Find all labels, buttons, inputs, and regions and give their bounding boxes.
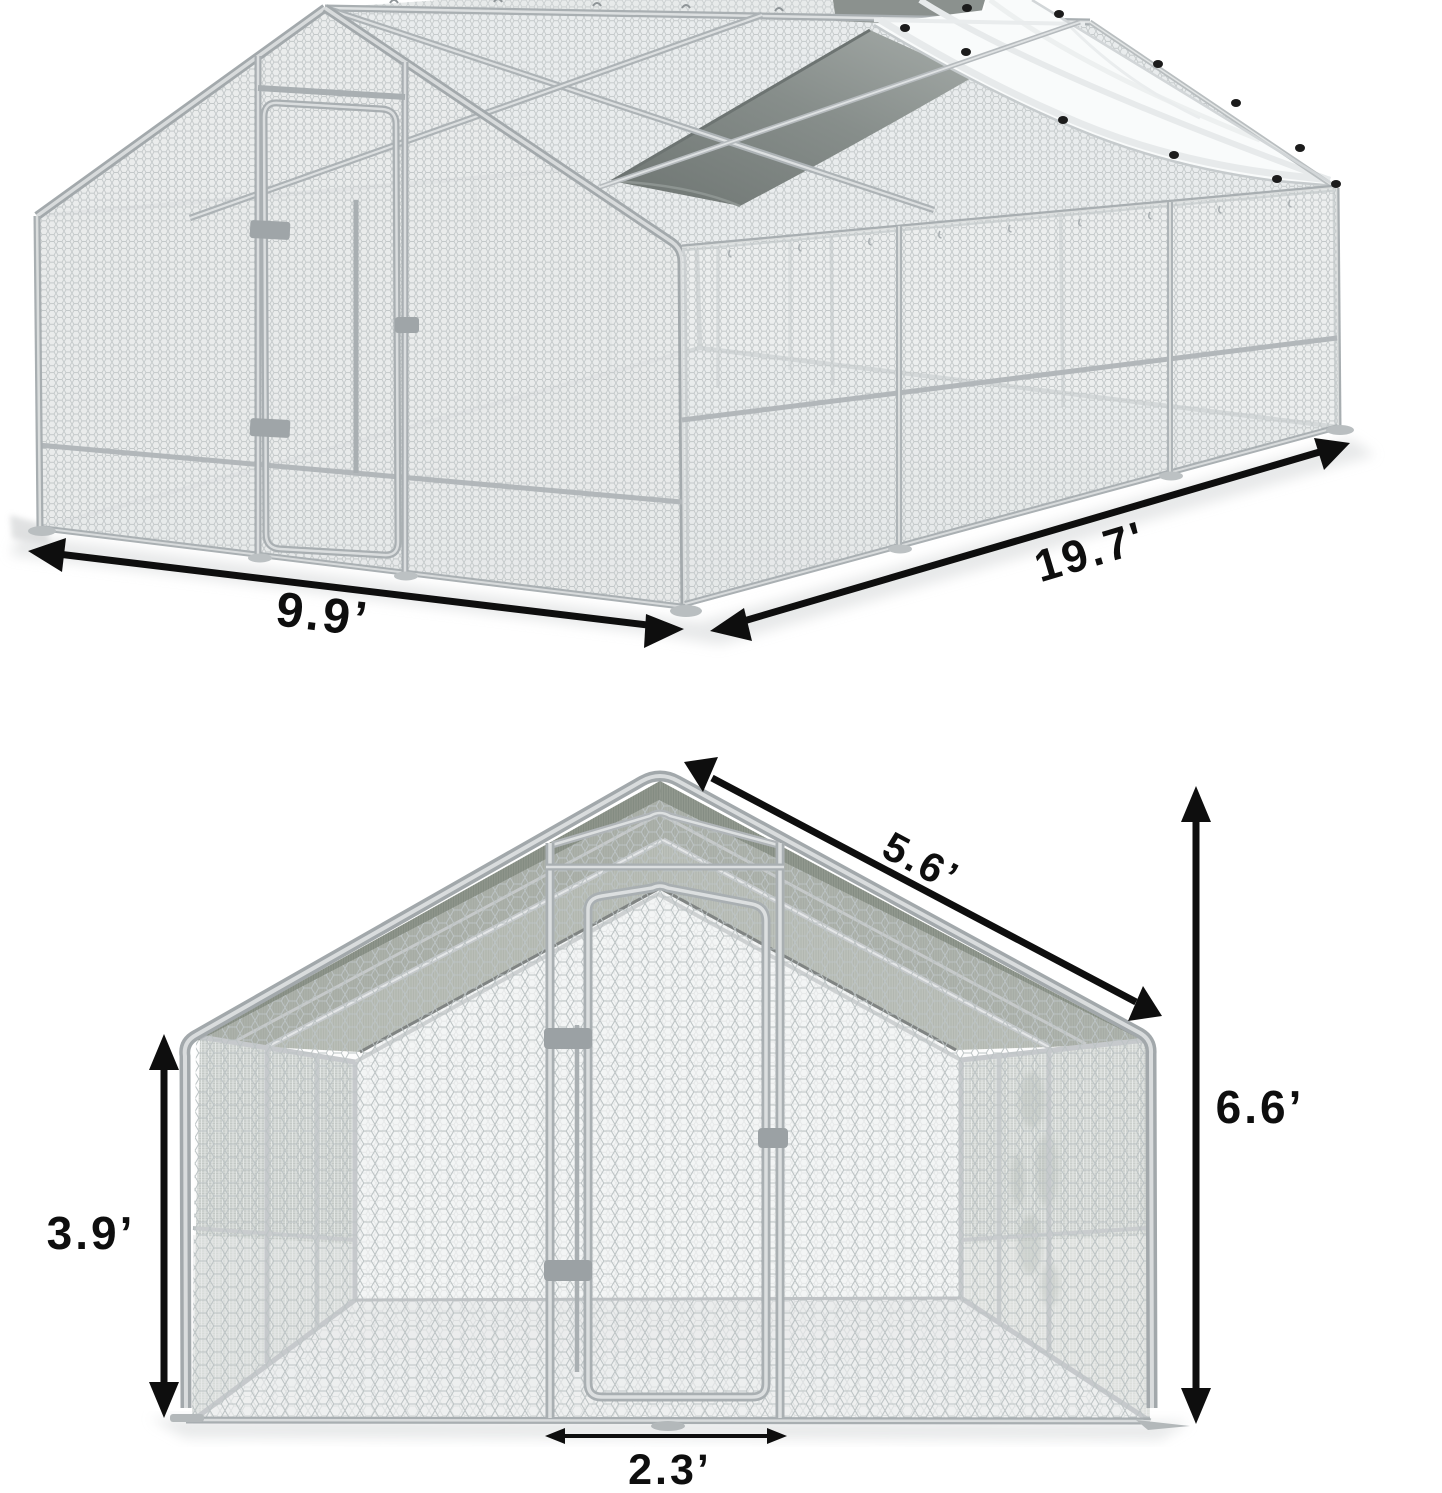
svg-text:2.3’: 2.3’ [628, 1446, 712, 1493]
svg-text:9.9’: 9.9’ [273, 582, 373, 647]
svg-text:6.6’: 6.6’ [1216, 1081, 1305, 1133]
svg-text:3.9’: 3.9’ [47, 1207, 136, 1259]
